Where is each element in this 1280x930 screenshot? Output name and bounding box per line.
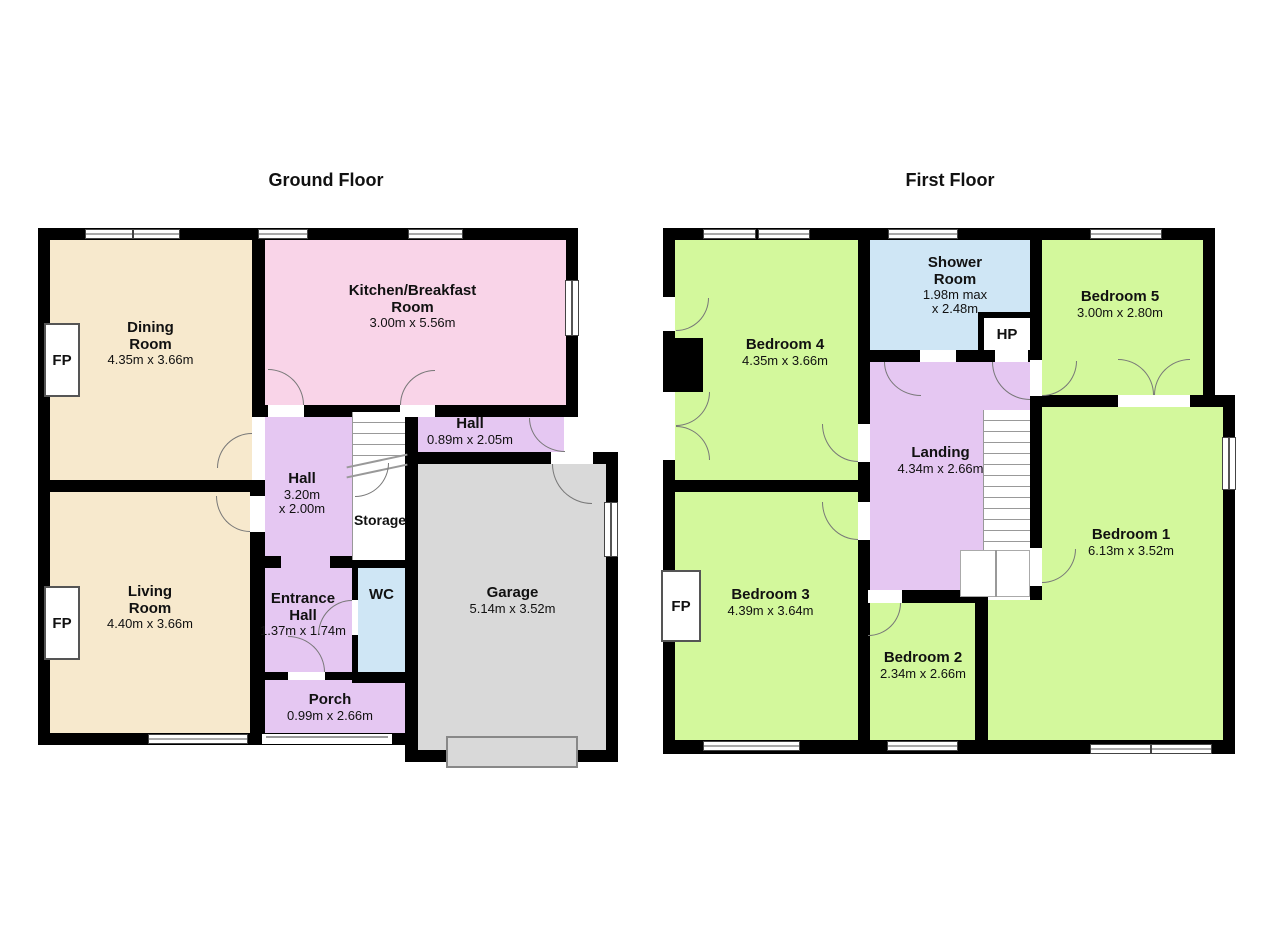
room-name: Room bbox=[78, 337, 223, 354]
label-wc: WC bbox=[358, 587, 405, 604]
label-dining-room: Dining Room 4.35m x 3.66m bbox=[78, 320, 223, 367]
garage-vehicle-door bbox=[446, 736, 578, 768]
window bbox=[565, 280, 579, 336]
stairs-divider-line bbox=[995, 550, 997, 597]
room-name: Bedroom 4 bbox=[700, 337, 870, 354]
cupboard-gap-2 bbox=[663, 392, 675, 460]
room-name: Living bbox=[75, 584, 225, 601]
door-gap-garage bbox=[551, 452, 593, 464]
label-storage: Storage bbox=[340, 513, 420, 528]
door-gap-bedroom5 bbox=[1030, 360, 1042, 396]
room-dims: 0.99m x 2.66m bbox=[255, 709, 405, 723]
room-dims: 4.40m x 3.66m bbox=[75, 617, 225, 631]
room-bedroom1 bbox=[1042, 407, 1223, 743]
label-landing: Landing 4.34m x 2.66m bbox=[858, 445, 1023, 476]
gf-wall-garage-left bbox=[405, 415, 418, 762]
door-gap-double-doors bbox=[1118, 395, 1190, 407]
room-name: HP bbox=[997, 326, 1018, 343]
window bbox=[604, 502, 618, 557]
window bbox=[703, 741, 800, 751]
window bbox=[758, 229, 810, 239]
room-dims: x 2.00m bbox=[262, 502, 342, 516]
room-dims: 3.00m x 5.56m bbox=[330, 316, 495, 330]
room-name: Entrance bbox=[250, 591, 356, 608]
ff-wall-bed4-bed3 bbox=[663, 480, 870, 492]
room-dims: 1.37m x 1.74m bbox=[250, 624, 356, 638]
room-wc bbox=[358, 565, 405, 675]
window bbox=[258, 229, 308, 239]
label-garage: Garage 5.14m x 3.52m bbox=[430, 585, 595, 616]
threshold-line bbox=[266, 736, 388, 738]
room-dims: 3.20m bbox=[262, 488, 342, 502]
stairs-ground bbox=[352, 412, 405, 462]
room-dims: 1.98m max bbox=[875, 288, 1035, 302]
stairs-first bbox=[983, 410, 1030, 550]
room-name: Dining bbox=[78, 320, 223, 337]
room-name: Porch bbox=[255, 692, 405, 709]
fireplace-dining: FP bbox=[44, 323, 80, 397]
door-gap-porch bbox=[288, 672, 325, 680]
label-bedroom2: Bedroom 2 2.34m x 2.66m bbox=[838, 650, 1008, 681]
room-name: Room bbox=[875, 272, 1035, 289]
gf-wall-porch-top bbox=[252, 672, 405, 680]
door-gap-side-door bbox=[564, 417, 580, 452]
gf-wall-dining-kitchen bbox=[252, 240, 265, 417]
label-bedroom1: Bedroom 1 6.13m x 3.52m bbox=[1046, 527, 1216, 558]
room-name: Bedroom 3 bbox=[688, 587, 853, 604]
door-gap-hp bbox=[995, 350, 1028, 362]
room-name: Shower bbox=[875, 255, 1035, 272]
room-name: Garage bbox=[430, 585, 595, 602]
room-dims: 4.35m x 3.66m bbox=[78, 353, 223, 367]
gf-wall-dining-living bbox=[38, 480, 265, 492]
fireplace-label: FP bbox=[52, 615, 71, 632]
room-dims: 4.39m x 3.64m bbox=[688, 604, 853, 618]
chimney-breast bbox=[663, 338, 703, 392]
gf-wall-stub-hall-left bbox=[265, 556, 281, 568]
door-gap-bedroom2 bbox=[868, 590, 902, 603]
room-dims: 4.34m x 2.66m bbox=[858, 462, 1023, 476]
label-bedroom5: Bedroom 5 3.00m x 2.80m bbox=[1035, 289, 1205, 320]
window bbox=[85, 229, 133, 239]
window bbox=[148, 734, 248, 744]
room-name: Hall bbox=[250, 608, 356, 625]
hp-cupboard: HP bbox=[984, 318, 1030, 350]
ground-floor-title: Ground Floor bbox=[176, 170, 476, 191]
room-dims: 0.89m x 2.05m bbox=[410, 433, 530, 447]
cupboard-gap-1 bbox=[663, 297, 675, 331]
fireplace-label: FP bbox=[52, 352, 71, 369]
window bbox=[1151, 744, 1212, 754]
door-gap-bedroom1 bbox=[1030, 548, 1042, 586]
door-gap-shower bbox=[920, 350, 956, 362]
room-name: Hall bbox=[410, 416, 530, 433]
room-name: Hall bbox=[262, 471, 342, 488]
room-dims: 4.35m x 3.66m bbox=[700, 354, 870, 368]
room-name: Room bbox=[330, 300, 495, 317]
label-living-room: Living Room 4.40m x 3.66m bbox=[75, 584, 225, 631]
label-hall-upper: Hall 0.89m x 2.05m bbox=[410, 416, 530, 447]
window bbox=[1090, 744, 1151, 754]
room-name: Storage bbox=[340, 513, 420, 528]
ff-wall-bed5-bottom-left bbox=[1030, 395, 1118, 407]
label-kitchen: Kitchen/Breakfast Room 3.00m x 5.56m bbox=[330, 283, 495, 330]
first-floor-title: First Floor bbox=[800, 170, 1100, 191]
room-name: Bedroom 5 bbox=[1035, 289, 1205, 306]
door-gap-bedroom3 bbox=[858, 502, 870, 540]
gf-wall-stub-hall-right bbox=[330, 556, 352, 568]
ff-wall-bed5-bottom-right bbox=[1190, 395, 1215, 407]
window bbox=[888, 229, 958, 239]
room-dims: 6.13m x 3.52m bbox=[1046, 544, 1216, 558]
label-porch: Porch 0.99m x 2.66m bbox=[255, 692, 405, 723]
window bbox=[703, 229, 756, 239]
room-name: Kitchen/Breakfast bbox=[330, 283, 495, 300]
room-dims: x 2.48m bbox=[875, 302, 1035, 316]
door-gap-dining bbox=[252, 432, 265, 468]
window bbox=[1222, 437, 1236, 490]
room-dims: 3.00m x 2.80m bbox=[1035, 306, 1205, 320]
floorplan-canvas: Ground Floor First Floor FP bbox=[0, 0, 1280, 930]
room-name: Room bbox=[75, 601, 225, 618]
room-name: Landing bbox=[858, 445, 1023, 462]
room-name: Bedroom 1 bbox=[1046, 527, 1216, 544]
window bbox=[1090, 229, 1162, 239]
window bbox=[408, 229, 463, 239]
label-bedroom3: Bedroom 3 4.39m x 3.64m bbox=[688, 587, 853, 618]
door-gap-kitchen-left bbox=[268, 405, 304, 417]
gf-wall-garage-right bbox=[606, 452, 618, 762]
label-hall: Hall 3.20m x 2.00m bbox=[262, 471, 342, 516]
label-bedroom4: Bedroom 4 4.35m x 3.66m bbox=[700, 337, 870, 368]
gf-wall-wc-top bbox=[352, 560, 405, 568]
label-shower-room: Shower Room 1.98m max x 2.48m bbox=[875, 255, 1035, 317]
room-dims: 2.34m x 2.66m bbox=[838, 667, 1008, 681]
label-entrance-hall: Entrance Hall 1.37m x 1.74m bbox=[250, 591, 356, 638]
room-name: WC bbox=[358, 587, 405, 604]
room-name: Bedroom 2 bbox=[838, 650, 1008, 667]
room-dims: 5.14m x 3.52m bbox=[430, 602, 595, 616]
window bbox=[133, 229, 180, 239]
window bbox=[887, 741, 958, 751]
